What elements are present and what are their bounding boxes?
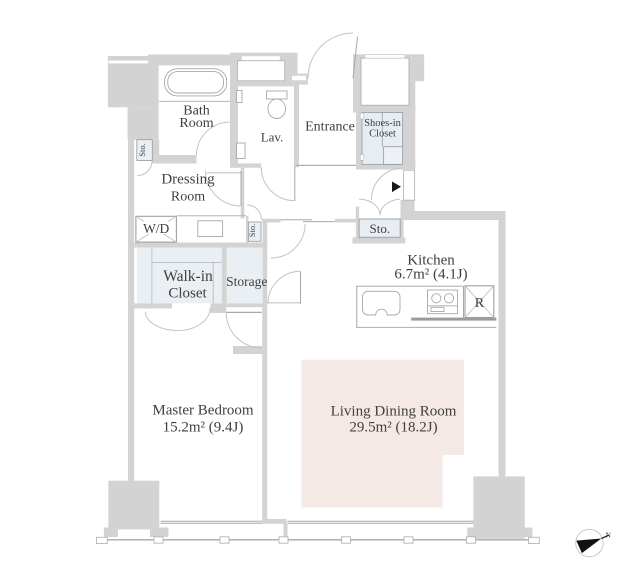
- svg-text:Room: Room: [179, 116, 213, 131]
- svg-text:Dressing: Dressing: [161, 172, 215, 188]
- svg-text:R: R: [475, 296, 485, 311]
- svg-text:Shoes-in: Shoes-in: [364, 118, 402, 129]
- svg-text:Storage: Storage: [226, 274, 267, 289]
- svg-text:29.5m² (18.2J): 29.5m² (18.2J): [349, 420, 437, 436]
- svg-text:Entrance: Entrance: [305, 120, 355, 135]
- svg-text:Living Dining Room: Living Dining Room: [331, 404, 457, 420]
- svg-text:Sto.: Sto.: [370, 221, 391, 236]
- svg-text:W/D: W/D: [143, 221, 169, 236]
- svg-text:Walk-in: Walk-in: [163, 268, 213, 285]
- svg-text:Sto.: Sto.: [247, 224, 257, 237]
- svg-text:Lav.: Lav.: [261, 130, 284, 145]
- svg-text:N: N: [606, 531, 612, 540]
- svg-text:Closet: Closet: [369, 129, 396, 140]
- svg-text:Master Bedroom: Master Bedroom: [152, 403, 254, 419]
- svg-text:Closet: Closet: [168, 286, 207, 302]
- svg-text:15.2m² (9.4J): 15.2m² (9.4J): [163, 420, 244, 436]
- svg-text:Sto.: Sto.: [137, 143, 147, 156]
- svg-text:Room: Room: [171, 190, 205, 205]
- svg-text:6.7m² (4.1J): 6.7m² (4.1J): [394, 266, 467, 282]
